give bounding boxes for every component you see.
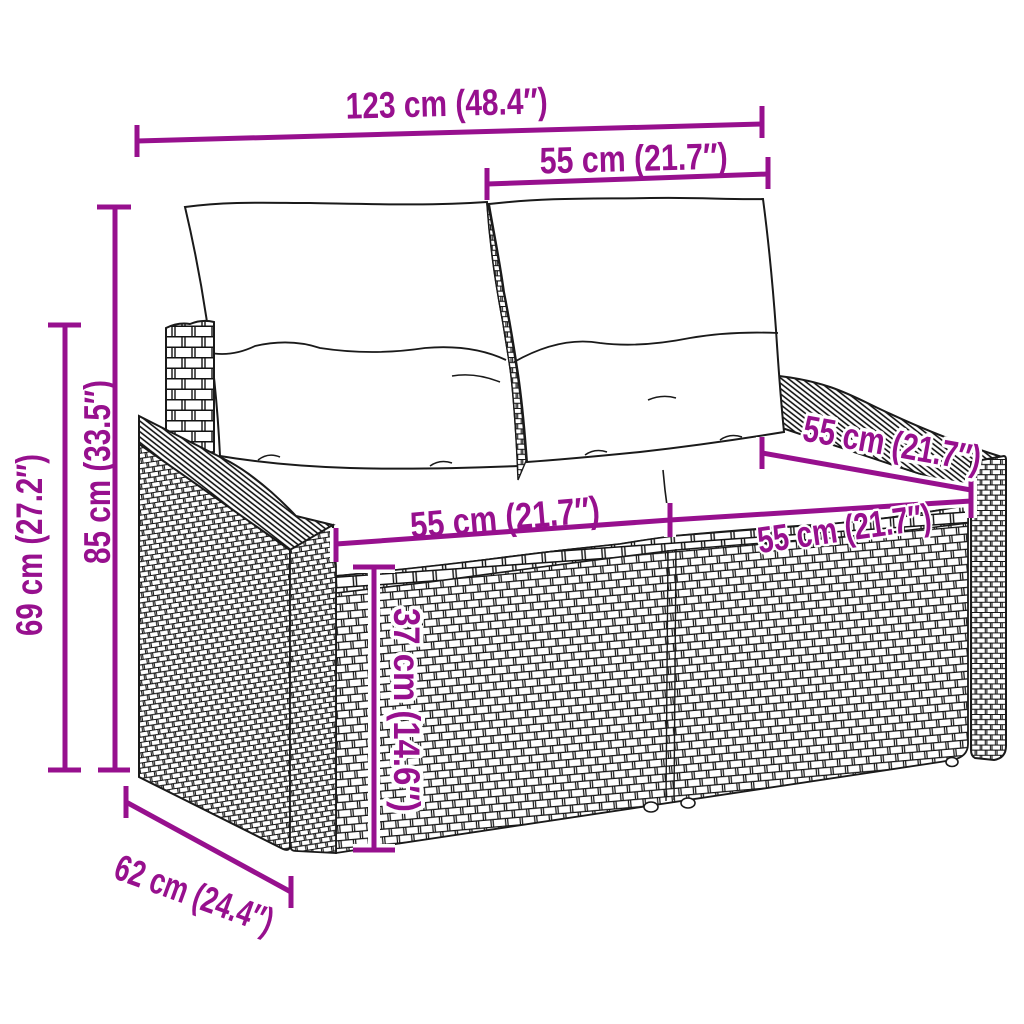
svg-text:85 cm (33.5″): 85 cm (33.5″) <box>77 380 118 564</box>
svg-text:37 cm (14.6″): 37 cm (14.6″) <box>386 608 427 812</box>
svg-text:55 cm (21.7″): 55 cm (21.7″) <box>539 136 728 182</box>
svg-text:123 cm (48.4″): 123 cm (48.4″) <box>345 80 548 126</box>
svg-text:69 cm (27.2″): 69 cm (27.2″) <box>9 454 50 636</box>
